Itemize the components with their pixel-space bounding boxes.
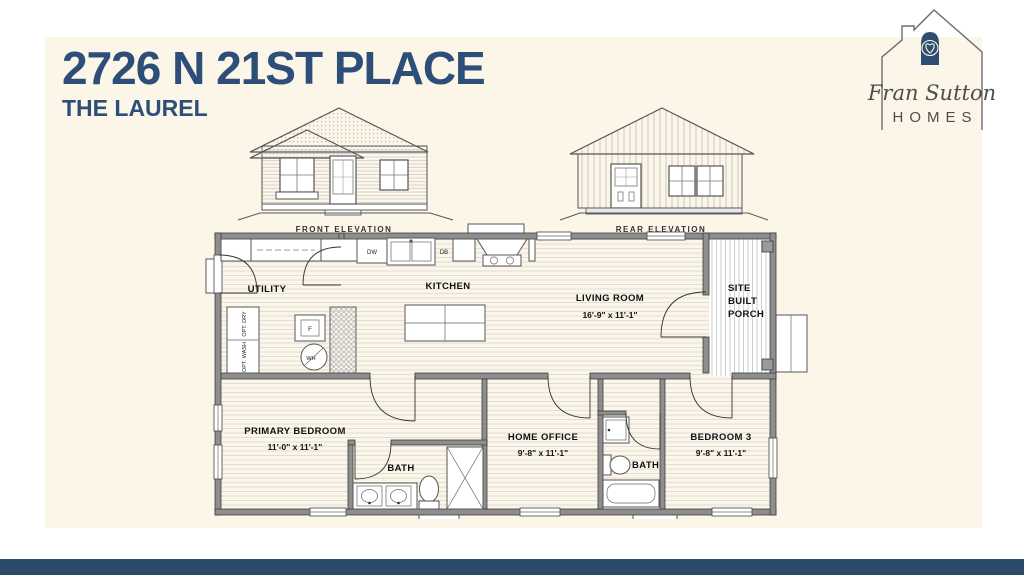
flyer-page: 2726 N 21ST PLACE THE LAUREL Fran Sutton… — [0, 0, 1024, 575]
rear-elevation-drawing: REAR ELEVATION — [556, 96, 771, 238]
brand-logo: Fran Sutton HOMES — [862, 2, 1002, 137]
porch-post — [762, 359, 773, 370]
opt-wash-label: OPT. WASH — [242, 342, 248, 372]
rear-entry-landing — [468, 224, 524, 234]
washer-dryer-stack: OPT. DRY OPT. WASH — [227, 307, 259, 373]
dishwasher-label: DW — [367, 250, 377, 256]
front-window-right-icon — [380, 160, 408, 190]
room-dims-living: 16'-9" x 11'-1" — [582, 310, 637, 320]
water-heater-icon: WH — [301, 344, 327, 370]
front-window-left-icon — [276, 158, 318, 199]
porch-post — [762, 241, 773, 252]
room-dims-bedroom3: 9'-8" x 11'-1" — [696, 448, 746, 458]
kitchen-island — [405, 305, 485, 341]
porch-label-3: PORCH — [728, 309, 764, 320]
room-label-bath1: BATH — [387, 463, 414, 474]
opt-dry-label: OPT. DRY — [242, 311, 248, 337]
shower-icon — [447, 447, 483, 509]
svg-text:WH: WH — [306, 356, 315, 362]
room-label-utility: UTILITY — [248, 284, 287, 295]
rear-door-icon — [611, 164, 641, 208]
brand-caps-text: HOMES — [892, 109, 977, 126]
brand-script-text: Fran Sutton — [867, 81, 996, 105]
bottom-accent-bar — [0, 559, 1024, 575]
front-elevation-drawing: FRONT ELEVATION — [232, 96, 460, 238]
room-dims-office: 9'-8" x 11'-1" — [518, 448, 568, 458]
db-label: DB — [440, 250, 448, 256]
room-label-living: LIVING ROOM — [576, 293, 644, 304]
room-label-primary: PRIMARY BEDROOM — [244, 426, 346, 437]
room-label-bedroom3: BEDROOM 3 — [690, 432, 751, 443]
room-label-office: HOME OFFICE — [508, 432, 578, 443]
porch-label-1: SITE — [728, 283, 751, 294]
svg-text:F: F — [308, 327, 312, 333]
porch-stoop — [776, 315, 807, 372]
vanity-icon — [603, 417, 629, 443]
tub-icon — [603, 480, 659, 507]
room-dims-primary: 11'-0" x 11'-1" — [268, 442, 323, 452]
kitchen-sink-icon — [387, 238, 435, 265]
page-title: 2726 N 21ST PLACE — [62, 44, 485, 92]
porch-label-2: BUILT — [728, 296, 757, 307]
door-heart-icon — [921, 32, 939, 65]
room-label-kitchen: KITCHEN — [425, 281, 470, 292]
refrigerator-icon: F — [295, 315, 325, 341]
toilet-icon — [419, 476, 439, 509]
pantry-cabinet — [330, 307, 356, 373]
room-label-bath2: BATH — [632, 460, 659, 471]
floor-plan-drawing: DW DB OPT. DRY — [205, 223, 815, 519]
toilet-icon — [603, 455, 630, 475]
